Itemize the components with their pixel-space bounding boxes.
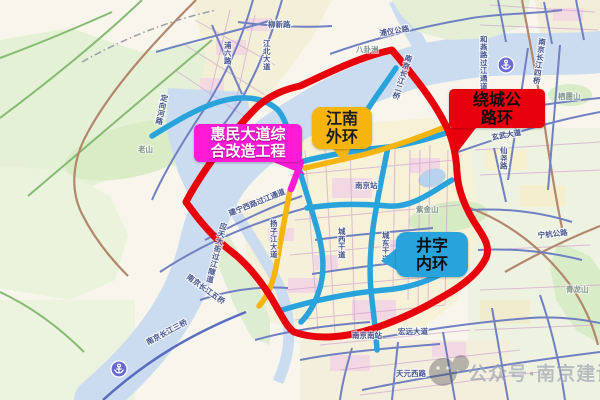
callout-jingzi-line2: 内环 — [416, 255, 448, 273]
area-label-qinglongshan: 青龙山 — [566, 284, 589, 294]
callout-ring-expressway: 绕城公 路环 — [449, 89, 545, 128]
map-canvas: 柳新路 浦六路 江北大道 定向河路 老山 浦仪公路 八卦洲 南京长江二桥 和燕路… — [0, 0, 600, 400]
road-label-xianyao-road: 仙尧路 — [500, 145, 508, 171]
road-label-tianyuanxi-road: 天元西路 — [396, 368, 426, 378]
road-label-hongyuan-avenue: 宏远大道 — [398, 326, 428, 336]
watermark-text: 公众号·南京建设 — [468, 362, 600, 385]
area-label-baguazhou: 八卦洲 — [355, 44, 379, 54]
road-label-yangzijiang-avenue: 扬子江大道 — [270, 218, 278, 259]
area-label-zijinshan: 紫金山 — [416, 204, 439, 214]
port-anchor-icon — [498, 57, 514, 73]
callout-jiangnan-outer-ring: 江南 外环 — [312, 107, 372, 149]
callout-huimin-avenue-project: 惠民大道综 合改造工程 — [194, 124, 302, 162]
road-label-liuxin-road: 柳新路 — [268, 19, 291, 29]
road-label-puliu-road: 浦六路 — [224, 40, 232, 66]
road-label-heyan-road-crossing: 和燕路过江通道 — [480, 34, 488, 91]
callout-huimin-line1: 惠民大道综 — [210, 126, 285, 143]
area-label-laoshan: 老山 — [137, 144, 153, 154]
callout-jingzi-line1: 井字 — [416, 237, 448, 255]
port-anchor-icon — [111, 361, 127, 377]
area-label-qixiashan: 栖霞山 — [558, 91, 581, 101]
station-label-nanjing-south-station: 南京南站 — [352, 330, 382, 340]
road-label-jiangbei-avenue: 江北大道 — [263, 38, 271, 71]
callout-huimin-line2: 合改造工程 — [210, 143, 285, 160]
callout-jingzi-inner-ring: 井字 内环 — [396, 232, 468, 277]
callout-jiangnan-line1: 江南 — [326, 110, 358, 128]
callout-jiangnan-line2: 外环 — [326, 128, 358, 146]
road-label-chengxi-expressway: 城西干道 — [338, 226, 346, 259]
nanjing-ring-roads-map: 柳新路 浦六路 江北大道 定向河路 老山 浦仪公路 八卦洲 南京长江二桥 和燕路… — [0, 0, 600, 400]
callout-raocheng-line1: 绕城公 — [473, 91, 521, 109]
station-label-nanjing-station: 南京站 — [355, 180, 378, 190]
callout-raocheng-line2: 路环 — [481, 109, 513, 127]
